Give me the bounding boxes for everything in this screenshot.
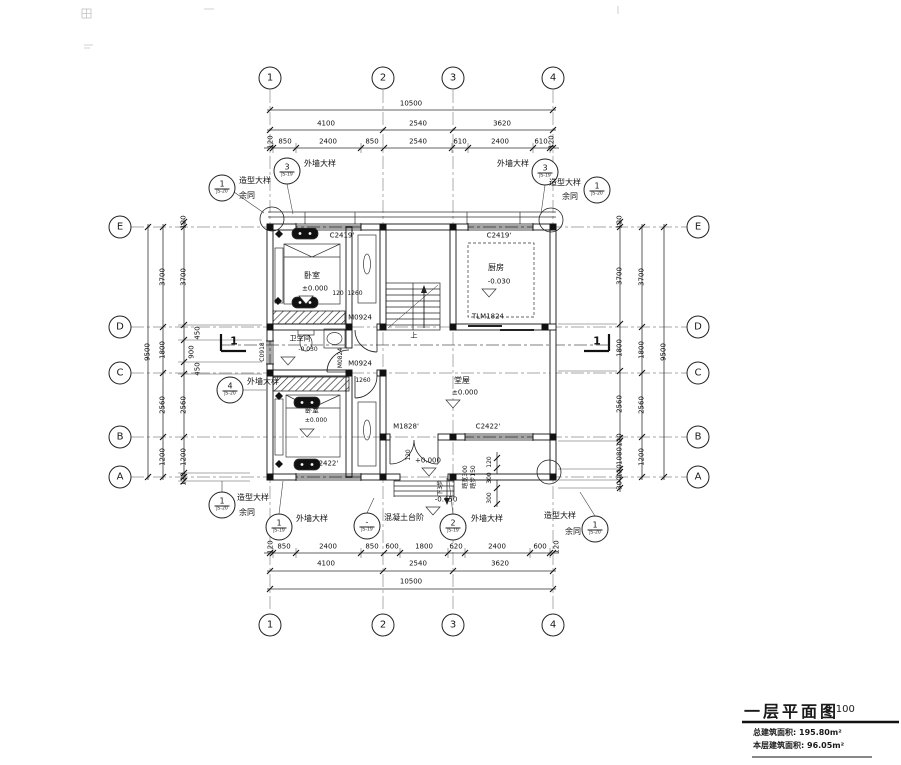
callout-label: 造型大样	[237, 494, 269, 502]
dim-label: 2400	[491, 139, 509, 146]
dim-label: 1800	[160, 341, 167, 359]
window-tag: C2422'	[476, 424, 501, 431]
callout-label: 余同	[239, 192, 255, 200]
callout-label: 外墙大样	[471, 515, 503, 523]
floor-area-label: 本层建筑面积:	[753, 741, 804, 750]
room-level-bathroom: -0.030	[298, 347, 317, 353]
plan-dim: 300	[487, 472, 493, 483]
dim-label: 9500	[145, 343, 152, 361]
dim-label: 4100	[317, 121, 335, 128]
dim-label: 850	[365, 139, 378, 146]
dim-label: 2560	[181, 396, 188, 414]
door-tag: TLM1824	[472, 314, 504, 321]
floor-area-line: 本层建筑面积: 96.05m²	[753, 740, 844, 751]
axis-bubble-left-D: D	[109, 316, 132, 339]
room-level-bedroom2: ±0.000	[305, 418, 327, 424]
axis-bubble-bottom-1: 1	[259, 614, 282, 637]
dim-label: 300	[617, 476, 624, 489]
dim-label: 3700	[639, 268, 646, 286]
callout-label: 外墙大样	[247, 378, 279, 386]
detail-callout: 4 JS-20	[217, 377, 244, 404]
callout-number: 3	[280, 163, 295, 173]
room-label-bedroom2: 卧室	[305, 408, 319, 415]
axis-bubble-bottom-2: 2	[372, 614, 395, 637]
dim-label: 3700	[160, 268, 167, 286]
callout-ref: JS-20	[591, 192, 603, 198]
dim-label: 4100	[317, 561, 335, 568]
stair-up-label: 上	[411, 333, 418, 340]
axis-bubble-right-D: D	[687, 316, 710, 339]
axis-bubble-right-B: B	[687, 426, 710, 449]
axis-bubble-top-4: 4	[542, 67, 565, 90]
dim-label: 2560	[160, 396, 167, 414]
dim-label: 2560	[639, 396, 646, 414]
floor-plan-canvas: 1 2 3 4 1 2 3 4 E D C B A E D C B A 120 …	[0, 0, 901, 765]
room-label-bathroom: 卫生间	[290, 336, 311, 343]
dim-label: 1080	[617, 447, 624, 465]
stairs	[386, 283, 440, 330]
dim-label: 2400	[319, 544, 337, 551]
axis-bubble-left-C: C	[109, 362, 132, 385]
plan-dim: 1260	[347, 291, 362, 297]
callout-label: 外墙大样	[497, 160, 529, 168]
section-mark-left: 1	[230, 336, 238, 347]
dim-label: 1800	[617, 339, 624, 357]
window-tag: C2419'	[330, 233, 355, 240]
dim-label: 620	[449, 544, 462, 551]
axis-bubble-right-A: A	[687, 466, 710, 489]
dim-label: 120	[549, 135, 556, 148]
callout-label: 造型大样	[544, 512, 576, 520]
callout-label: 造型大样	[239, 177, 271, 185]
axis-bubble-right-C: C	[687, 362, 710, 385]
callout-ref: JS-19	[273, 529, 285, 535]
dim-label: 1800	[415, 544, 433, 551]
dim-label: 900	[189, 345, 196, 358]
axis-bubble-bottom-4: 4	[542, 614, 565, 637]
room-level-kitchen: -0.030	[488, 279, 511, 286]
drawing-title: 一层平面图	[744, 698, 839, 722]
callout-number: 3	[538, 164, 553, 174]
detail-callout: 3 JS-19	[274, 158, 301, 185]
dim-label: 10500	[400, 579, 422, 586]
dim-label: 3700	[181, 268, 188, 286]
section-mark-right: 1	[593, 336, 601, 347]
callout-label: 外墙大样	[296, 515, 328, 523]
axis-bubble-top-1: 1	[259, 67, 282, 90]
callout-number: 1	[588, 521, 603, 531]
window-tag: C0918	[260, 342, 266, 361]
stair-tread-note: 踏宽300	[463, 465, 469, 488]
dim-label: 450	[195, 362, 202, 375]
callout-ref: JS-19	[361, 528, 373, 534]
dim-label: 600	[533, 544, 546, 551]
door-tag: M1828'	[393, 424, 419, 431]
callout-number: 1	[215, 180, 230, 190]
axis-bubble-left-A: A	[109, 466, 132, 489]
dim-label: 850	[365, 544, 378, 551]
dim-label: 850	[277, 544, 290, 551]
dim-label: 120	[181, 215, 188, 228]
room-label-kitchen: 厨房	[488, 264, 504, 272]
dim-label: 2560	[617, 395, 624, 413]
stair-down-note: 下3步	[438, 480, 444, 496]
callout-number: 4	[223, 382, 238, 392]
callout-ref: JS-19	[281, 173, 293, 179]
room-label-hall: 堂屋	[454, 377, 470, 385]
room-level-vestibule: +0.000	[415, 458, 441, 465]
callout-ref: JS-20	[216, 507, 228, 513]
dim-label: 610	[534, 139, 547, 146]
dim-label: 3620	[493, 121, 511, 128]
dim-label: 120	[268, 540, 275, 553]
total-area-line: 总建筑面积: 195.80m²	[753, 727, 842, 738]
drawing-scale: 1:100	[826, 704, 855, 715]
callout-ref: JS-19	[447, 529, 459, 535]
detail-callout: 1 JS-20	[582, 516, 609, 543]
dim-label: 2400	[488, 544, 506, 551]
plan-dim: 120	[332, 291, 343, 297]
axis-bubble-left-E: E	[109, 216, 132, 239]
dim-label: 850	[278, 139, 291, 146]
plan-linework	[0, 0, 901, 765]
dim-label: 2540	[409, 139, 427, 146]
dim-label: 2540	[409, 121, 427, 128]
callout-label: 余同	[565, 528, 581, 536]
plan-dim: 120	[487, 456, 493, 467]
detail-callout: 1 JS-19	[266, 514, 293, 541]
callout-number: -	[360, 518, 375, 528]
door-tag: M0924	[348, 315, 372, 322]
callout-number: 1	[215, 497, 230, 507]
room-level-bedroom1: ±0.000	[302, 286, 328, 293]
axis-bubble-bottom-3: 3	[442, 614, 465, 637]
callout-label: 造型大样	[549, 179, 581, 187]
door-tag: M0824	[338, 348, 344, 368]
detail-callout: 1 JS-20	[584, 177, 611, 204]
dim-label: 600	[385, 544, 398, 551]
stair-riser-note: 踏步150	[471, 465, 477, 488]
dim-label: 3700	[617, 267, 624, 285]
callout-label: 余同	[562, 193, 578, 201]
plan-dim: 300	[487, 492, 493, 503]
dim-label: 120	[617, 215, 624, 228]
floor-area-value: 96.05m²	[807, 741, 844, 750]
dim-label: 9500	[661, 343, 668, 361]
callout-label: 外墙大样	[304, 160, 336, 168]
dim-label: 1800	[639, 341, 646, 359]
dim-label: 120	[181, 472, 188, 485]
page-artifacts	[82, 6, 618, 48]
plan-dim: 1260	[355, 378, 370, 384]
callout-number: 2	[446, 519, 461, 529]
axis-bubble-top-3: 3	[442, 67, 465, 90]
detail-callout: 1 JS-20	[209, 175, 236, 202]
dim-label: 1200	[639, 448, 646, 466]
axis-bubble-right-E: E	[687, 216, 710, 239]
window-tag: C2419'	[487, 233, 512, 240]
axis-bubble-top-2: 2	[372, 67, 395, 90]
room-level-hall: ±0.000	[452, 390, 478, 397]
callout-number: 1	[272, 519, 287, 529]
callout-ref: JS-20	[589, 531, 601, 537]
dim-label: 2400	[319, 139, 337, 146]
dim-label: 3620	[491, 561, 509, 568]
callout-number: 1	[590, 182, 605, 192]
door-tag: M0924	[348, 361, 372, 368]
eave-band	[268, 212, 556, 224]
detail-callout: - JS-19	[354, 513, 381, 540]
total-area-value: 195.80m²	[799, 728, 842, 737]
plan-dim: 120	[406, 449, 412, 460]
window-tag: C2422'	[314, 461, 339, 468]
dim-label: 10500	[400, 101, 422, 108]
total-area-label: 总建筑面积:	[753, 728, 796, 737]
dim-label: 2540	[409, 561, 427, 568]
dim-label: 1200	[181, 448, 188, 466]
callout-label: 余同	[239, 509, 255, 517]
dim-label: 450	[195, 326, 202, 339]
callout-ref: JS-20	[224, 392, 236, 398]
dim-label: 120	[617, 433, 624, 446]
axis-bubble-left-B: B	[109, 426, 132, 449]
detail-callout: 1 JS-20	[209, 492, 236, 519]
dim-label: 120	[268, 135, 275, 148]
level-outdoor: -0.450	[435, 497, 458, 504]
callout-label: 混凝土台阶	[384, 514, 424, 522]
dim-label: 1200	[160, 448, 167, 466]
dim-label: 120	[554, 540, 561, 553]
room-label-bedroom1: 卧室	[304, 272, 320, 280]
detail-callout: 2 JS-19	[440, 514, 467, 541]
callout-ref: JS-20	[216, 190, 228, 196]
dim-label: 610	[453, 139, 466, 146]
